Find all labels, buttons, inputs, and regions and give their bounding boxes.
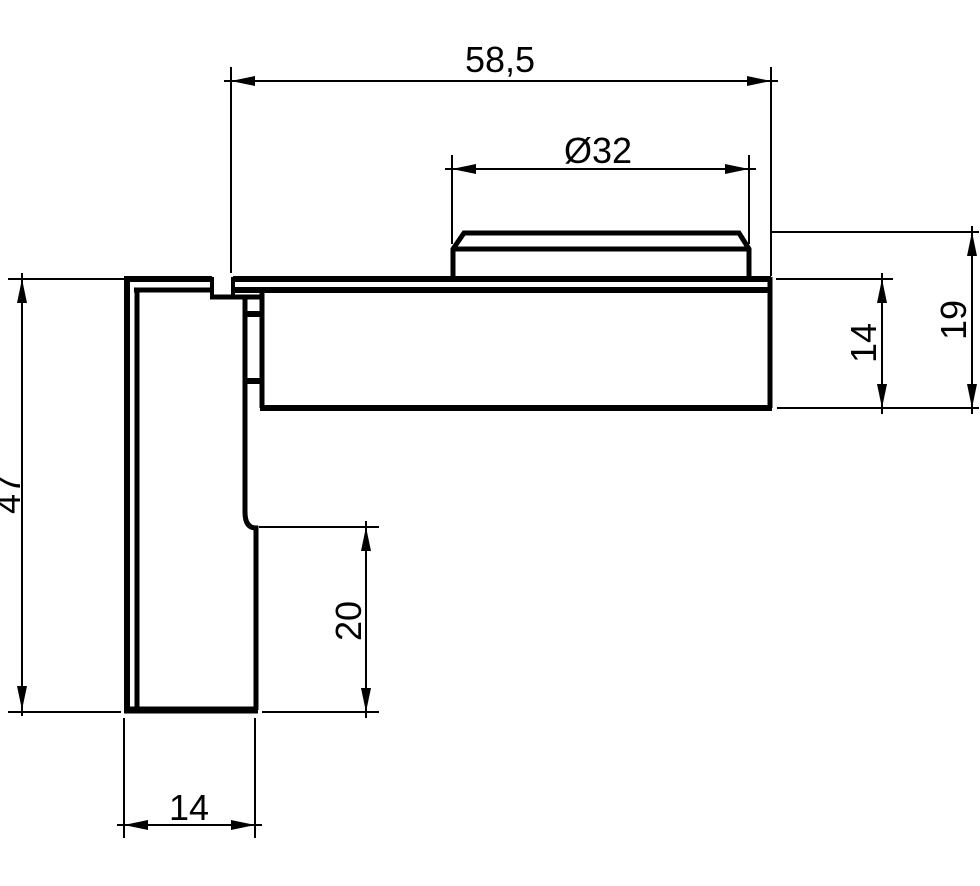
arrowhead-bottom xyxy=(967,384,977,408)
arrowhead-top xyxy=(17,279,27,303)
dimension-label: 14 xyxy=(169,787,209,828)
boss-outline xyxy=(453,233,749,279)
dimension-overall-width: 58,5 xyxy=(224,39,778,276)
arrowhead-left xyxy=(231,76,255,86)
arrowhead-bottom xyxy=(361,688,371,712)
arrowhead-top xyxy=(877,279,887,303)
dimension-leg-width: 14 xyxy=(117,718,262,838)
dimension-arm-plate-thickness: 14 xyxy=(776,273,893,414)
arrowhead-right xyxy=(725,164,749,174)
dimension-leg-lower-step: 20 xyxy=(259,521,379,718)
dimension-label: 14 xyxy=(843,323,884,363)
arrowhead-top xyxy=(967,232,977,256)
leg-right-edge xyxy=(245,297,256,710)
arrowhead-right xyxy=(747,76,771,86)
dimension-label: 19 xyxy=(933,300,974,340)
arrowhead-bottom xyxy=(17,686,27,710)
drawing-sheet: 58,5 Ø32 19 14 47 xyxy=(0,0,980,886)
arrowhead-bottom xyxy=(877,384,887,408)
dimension-boss-diameter: Ø32 xyxy=(445,130,756,244)
dimension-arm-total-height: 19 xyxy=(772,226,979,414)
arrowhead-top xyxy=(361,527,371,551)
dimension-leg-height: 47 xyxy=(0,273,124,716)
arrowhead-left xyxy=(124,820,148,830)
dimension-label: Ø32 xyxy=(564,130,632,171)
part-outline xyxy=(124,233,772,710)
arrowhead-left xyxy=(452,164,476,174)
dimension-label: 58,5 xyxy=(465,39,535,80)
technical-drawing-canvas: 58,5 Ø32 19 14 47 xyxy=(0,0,980,886)
dimension-label: 20 xyxy=(328,601,369,641)
arrowhead-right xyxy=(231,820,255,830)
dimension-label: 47 xyxy=(0,474,28,514)
